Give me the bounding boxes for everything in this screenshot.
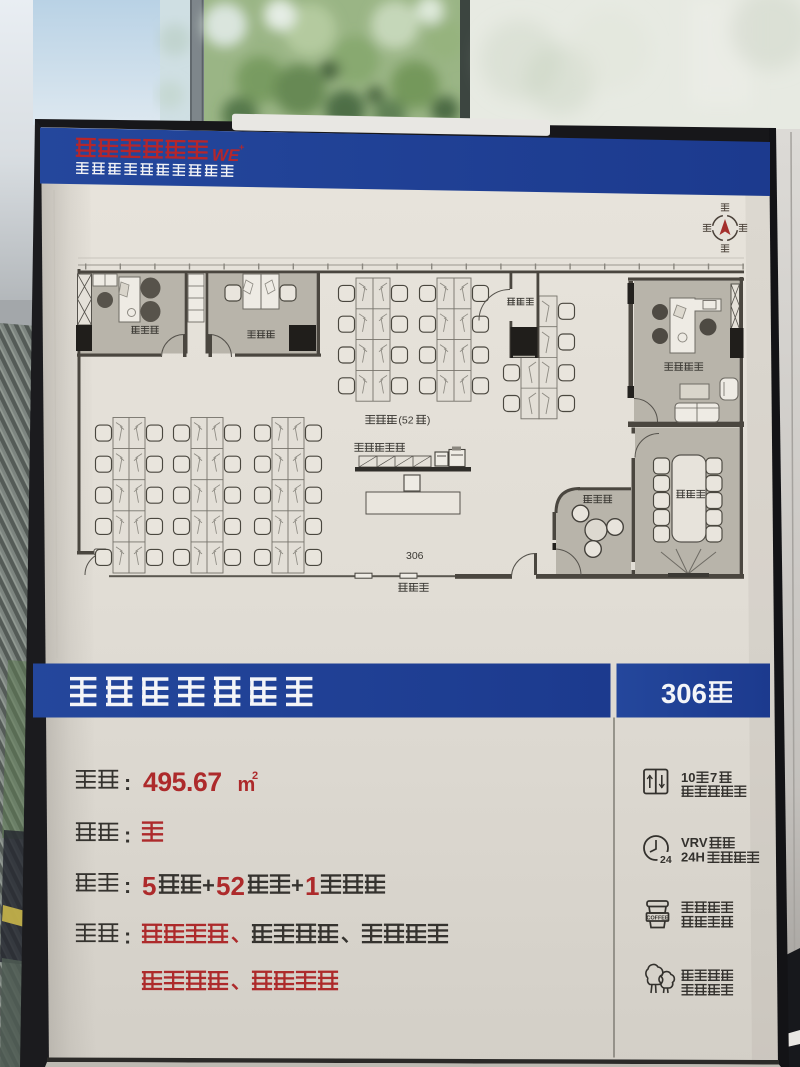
- svg-text:(52: (52: [398, 415, 413, 427]
- svg-text:VRV: VRV: [681, 835, 708, 850]
- svg-text:24H: 24H: [681, 850, 705, 865]
- svg-text::: :: [124, 874, 131, 898]
- svg-text:24: 24: [660, 854, 672, 866]
- svg-text:495.67: 495.67: [143, 767, 222, 797]
- svg-text::: :: [124, 824, 131, 848]
- svg-text:306: 306: [661, 678, 707, 709]
- svg-text:1: 1: [305, 871, 319, 901]
- svg-text:+: +: [239, 142, 244, 152]
- svg-text:、: 、: [231, 971, 251, 993]
- svg-text:+: +: [291, 873, 304, 898]
- svg-text:): ): [427, 415, 431, 427]
- svg-text:WE: WE: [212, 146, 240, 166]
- svg-text:52: 52: [216, 871, 245, 901]
- svg-text:COFFEE: COFFEE: [647, 916, 669, 922]
- svg-text:5: 5: [142, 871, 156, 901]
- svg-text:、: 、: [231, 924, 251, 946]
- svg-text::: :: [124, 771, 131, 795]
- svg-text:+: +: [202, 873, 215, 898]
- svg-text:306: 306: [406, 550, 424, 562]
- svg-text:2: 2: [252, 770, 258, 782]
- svg-text:7: 7: [710, 770, 717, 785]
- svg-text::: :: [124, 925, 131, 949]
- svg-text:10: 10: [681, 770, 695, 785]
- svg-text:、: 、: [341, 924, 361, 946]
